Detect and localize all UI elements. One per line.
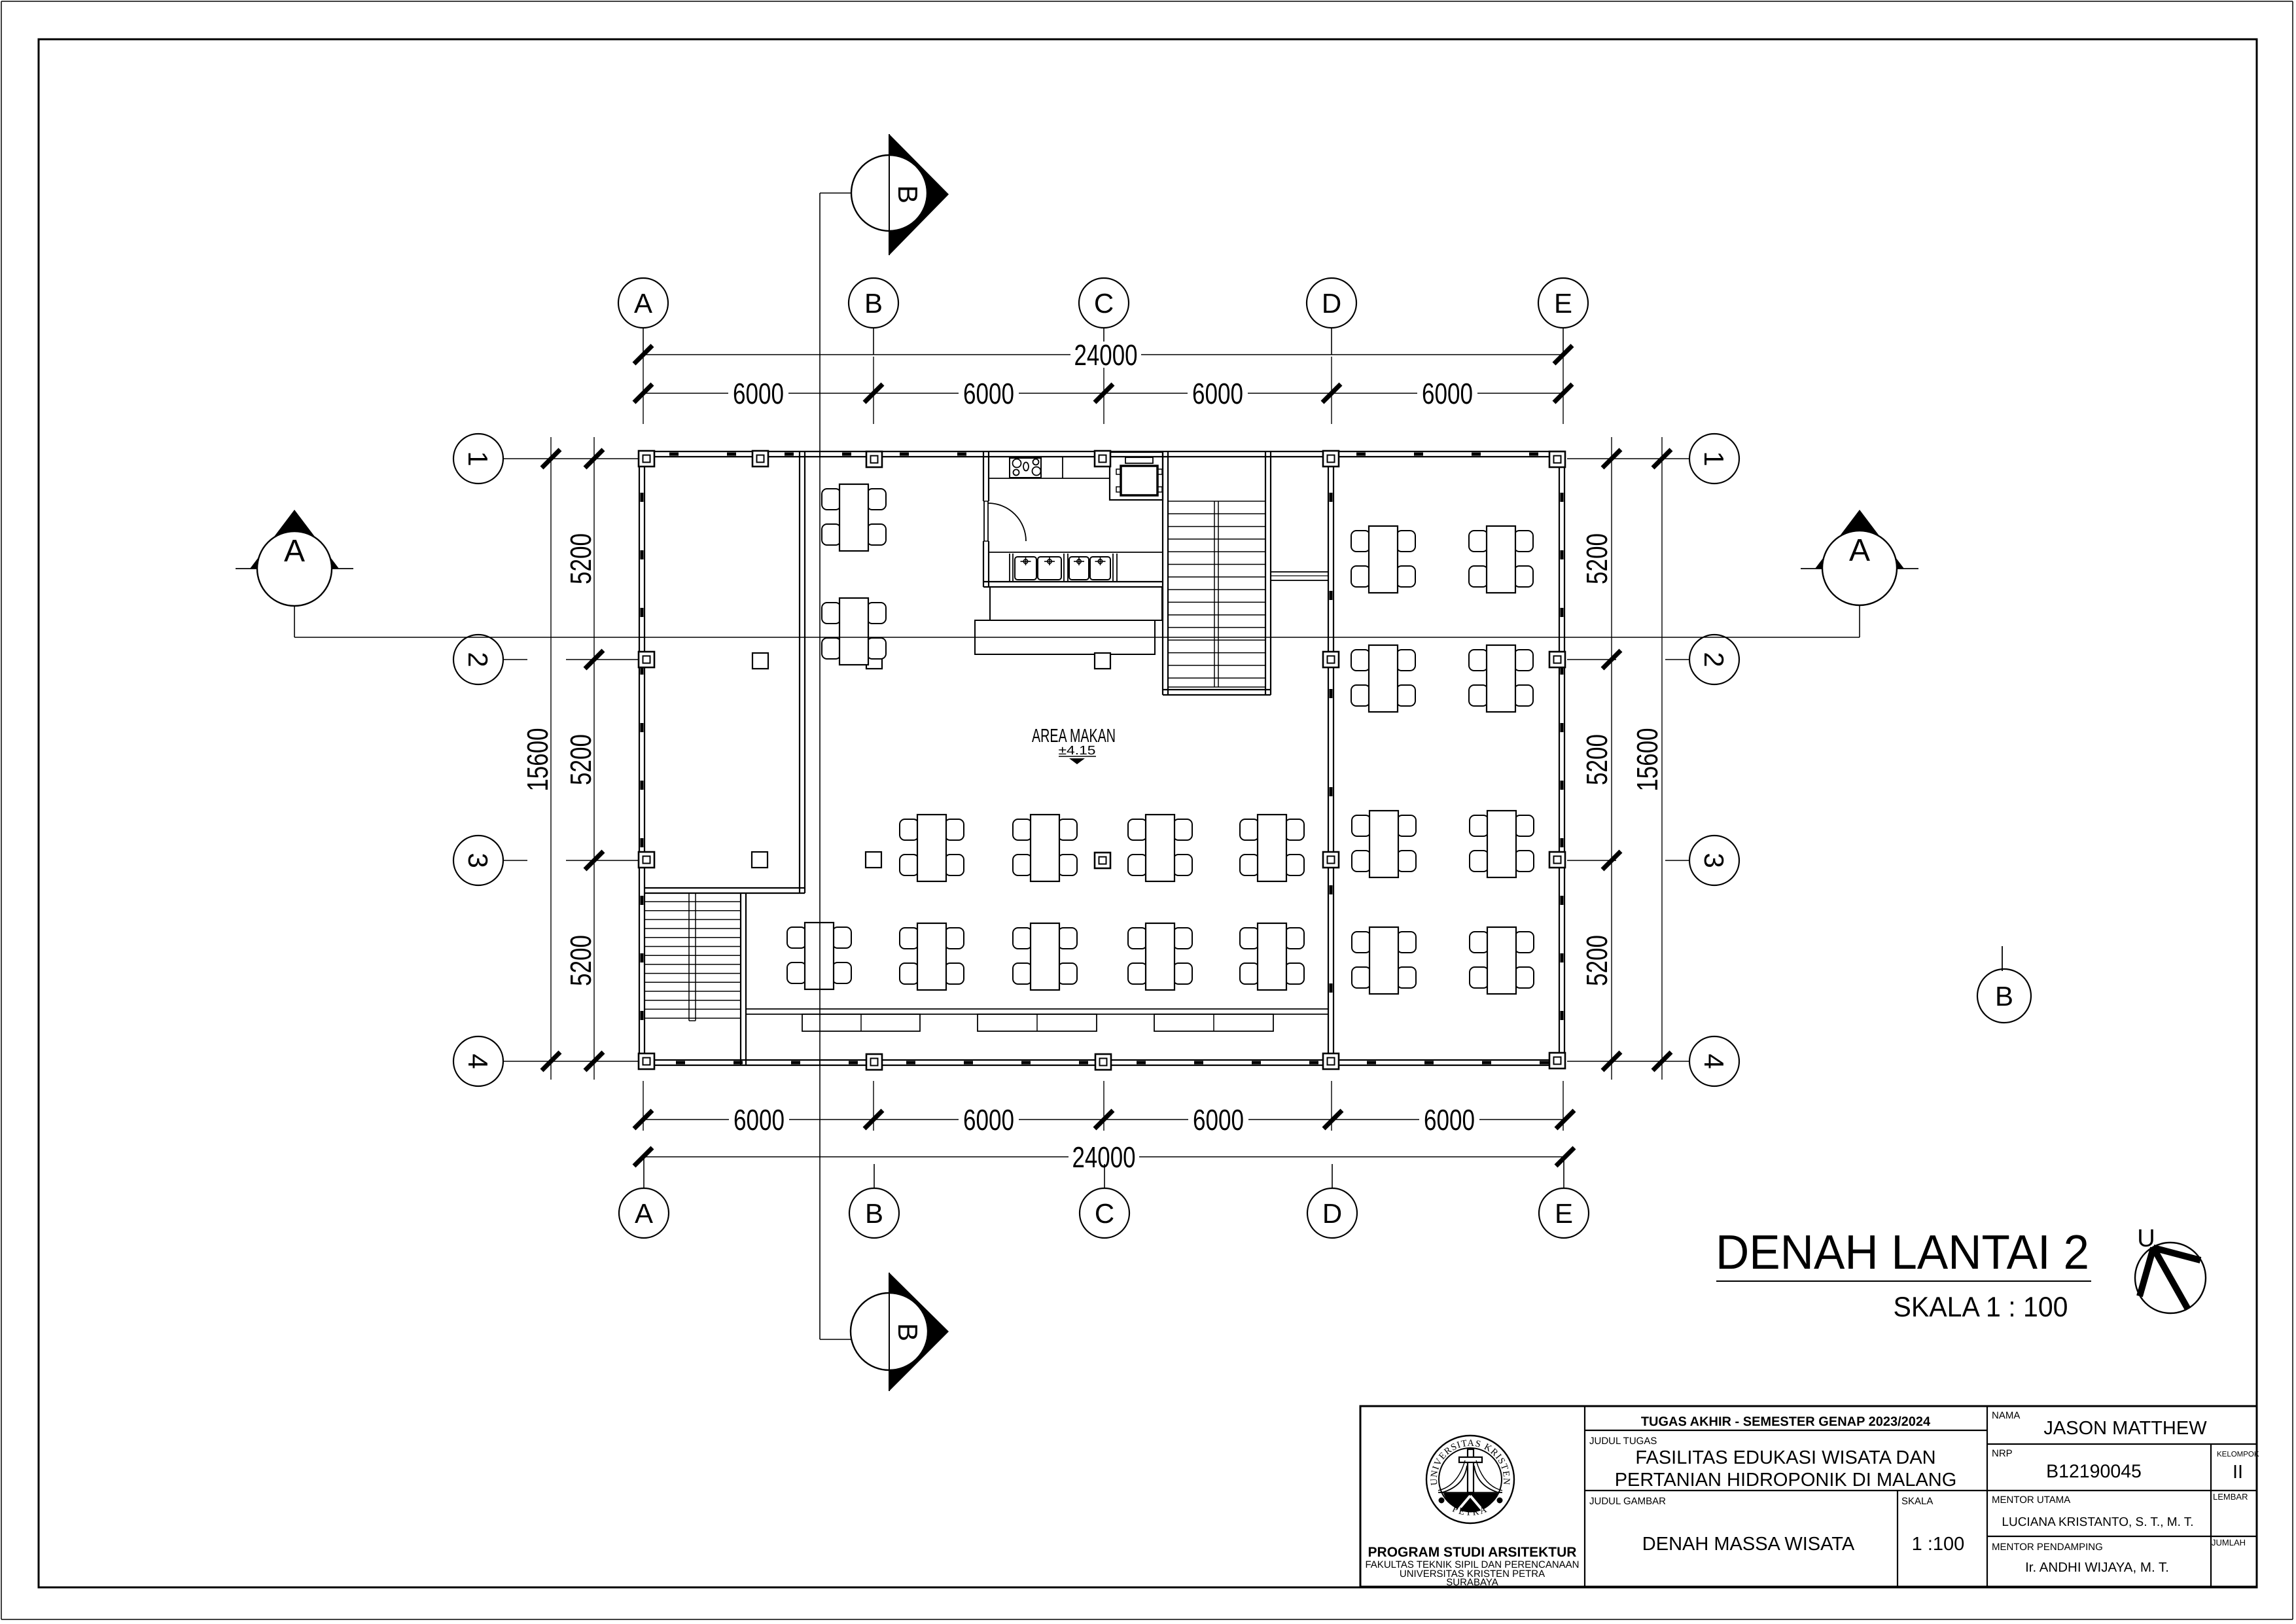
svg-text:A: A — [1849, 533, 1870, 568]
svg-text:15600: 15600 — [521, 728, 554, 792]
svg-text:5200: 5200 — [564, 734, 597, 785]
svg-text:SURABAYA: SURABAYA — [1446, 1577, 1498, 1588]
svg-text:5200: 5200 — [564, 935, 597, 986]
svg-text:JUDUL TUGAS: JUDUL TUGAS — [1589, 1436, 1657, 1447]
svg-text:PERTANIAN HIDROPONIK DI MALANG: PERTANIAN HIDROPONIK DI MALANG — [1615, 1470, 1957, 1491]
svg-text:NRP: NRP — [1992, 1448, 2013, 1459]
svg-text:15600: 15600 — [1631, 728, 1664, 792]
svg-text:6000: 6000 — [1192, 377, 1243, 410]
svg-text:B: B — [1995, 981, 2013, 1012]
svg-text:A: A — [284, 534, 305, 569]
svg-text:LUCIANA KRISTANTO, S. T., M. T: LUCIANA KRISTANTO, S. T., M. T. — [2002, 1515, 2193, 1529]
svg-text:A: A — [635, 1198, 653, 1229]
svg-text:DENAH LANTAI 2: DENAH LANTAI 2 — [1716, 1225, 2089, 1279]
svg-text:±4.15: ±4.15 — [1059, 744, 1096, 758]
svg-text:5200: 5200 — [1580, 935, 1614, 986]
svg-text:6000: 6000 — [963, 377, 1014, 410]
svg-text:2: 2 — [1699, 652, 1729, 667]
svg-text:TUGAS AKHIR - SEMESTER GENAP 2: TUGAS AKHIR - SEMESTER GENAP 2023/2024 — [1641, 1415, 1931, 1429]
svg-text:3: 3 — [1699, 853, 1729, 868]
svg-text:SKALA 1 : 100: SKALA 1 : 100 — [1894, 1292, 2068, 1323]
svg-text:5200: 5200 — [1580, 734, 1614, 785]
svg-text:B: B — [892, 1323, 923, 1341]
svg-text:C: C — [1095, 1198, 1114, 1229]
svg-text:II: II — [2233, 1462, 2243, 1483]
svg-text:D: D — [1322, 288, 1341, 319]
svg-text:SKALA: SKALA — [1901, 1496, 1933, 1507]
svg-text:A: A — [634, 288, 652, 319]
svg-text:KELOMPOK: KELOMPOK — [2217, 1451, 2259, 1458]
svg-text:JASON MATTHEW: JASON MATTHEW — [2043, 1418, 2207, 1439]
svg-text:6000: 6000 — [1422, 377, 1473, 410]
svg-text:1 :100: 1 :100 — [1912, 1534, 1965, 1555]
svg-text:DENAH MASSA WISATA: DENAH MASSA WISATA — [1642, 1534, 1855, 1555]
svg-text:B12190045: B12190045 — [2046, 1461, 2142, 1482]
svg-text:24000: 24000 — [1072, 1140, 1136, 1174]
svg-text:B: B — [892, 185, 923, 203]
svg-text:JUDUL GAMBAR: JUDUL GAMBAR — [1589, 1496, 1666, 1507]
svg-text:1: 1 — [463, 451, 493, 466]
svg-text:6000: 6000 — [733, 1103, 785, 1137]
svg-text:B: B — [865, 1198, 883, 1229]
svg-text:5200: 5200 — [564, 533, 597, 584]
svg-text:MENTOR PENDAMPING: MENTOR PENDAMPING — [1992, 1542, 2103, 1553]
svg-text:6000: 6000 — [963, 1103, 1014, 1137]
svg-text:FASILITAS EDUKASI WISATA DAN: FASILITAS EDUKASI WISATA DAN — [1635, 1447, 1935, 1468]
svg-text:6000: 6000 — [733, 377, 784, 410]
svg-text:PROGRAM STUDI ARSITEKTUR: PROGRAM STUDI ARSITEKTUR — [1368, 1545, 1577, 1560]
svg-text:Ir. ANDHI WIJAYA, M. T.: Ir. ANDHI WIJAYA, M. T. — [2025, 1560, 2169, 1575]
svg-text:3: 3 — [463, 853, 493, 868]
svg-text:E: E — [1555, 1198, 1573, 1229]
svg-text:4: 4 — [463, 1053, 493, 1068]
svg-text:D: D — [1322, 1198, 1342, 1229]
svg-text:E: E — [1554, 288, 1572, 319]
svg-text:4: 4 — [1699, 1053, 1729, 1068]
svg-text:6000: 6000 — [1193, 1103, 1244, 1137]
svg-text:MENTOR UTAMA: MENTOR UTAMA — [1992, 1494, 2070, 1506]
svg-text:2: 2 — [463, 652, 493, 667]
svg-text:6000: 6000 — [1424, 1103, 1475, 1137]
svg-text:5200: 5200 — [1580, 533, 1614, 584]
svg-text:NAMA: NAMA — [1992, 1410, 2020, 1421]
svg-text:C: C — [1094, 288, 1114, 319]
svg-text:JUMLAH: JUMLAH — [2212, 1538, 2246, 1547]
svg-text:24000: 24000 — [1074, 338, 1138, 372]
svg-text:LEMBAR: LEMBAR — [2213, 1492, 2248, 1502]
svg-text:1: 1 — [1699, 451, 1729, 466]
svg-text:B: B — [864, 288, 883, 319]
